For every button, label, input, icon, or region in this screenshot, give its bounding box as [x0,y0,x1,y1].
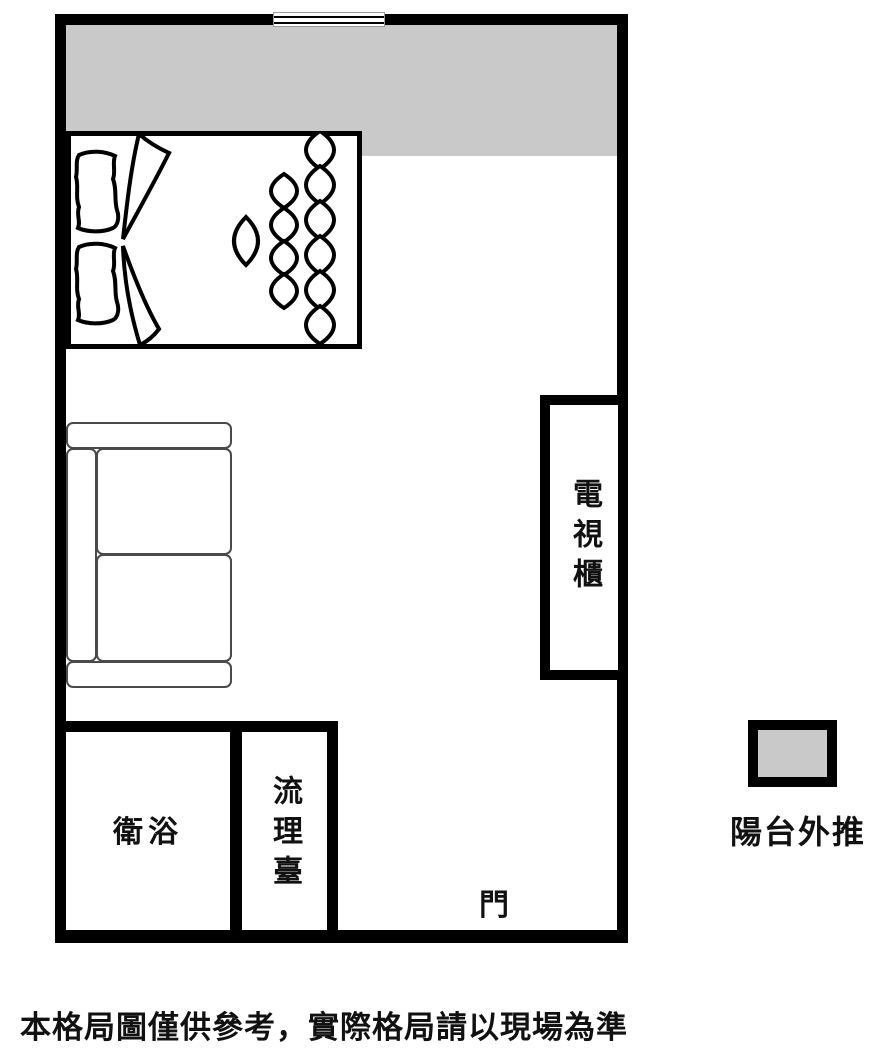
sofa-armrest [66,422,232,449]
sofa-seat-cushion [96,448,232,555]
quilt-diamond-pattern [234,131,334,344]
blanket-fold [123,246,159,345]
door-label: 門 [479,891,519,921]
bed [66,131,362,349]
tv-cabinet: 電視櫃 [540,395,628,680]
disclaimer-text: 本格局圖僅供參考，實際格局請以現場為準 [20,1002,870,1047]
window-pane-line [274,22,384,24]
blanket-fold [123,134,169,239]
pillow-icon [76,244,118,324]
legend-balcony-label: 陽台外推 [722,807,874,853]
sofa-armrest [66,661,232,688]
pillow-icon [76,152,118,232]
bathroom-label: 衛浴 [88,818,208,848]
legend-balcony-swatch [748,720,837,787]
floor-plan-canvas: 電視櫃 衛浴 流理臺 門 陽台外推 本格局圖僅供參考，實際格局請以現場為準 [0,0,889,1050]
sofa-seat-cushion [96,554,232,662]
window-icon [273,12,385,27]
sofa-backrest [66,448,97,662]
tv-cabinet-label: 電視櫃 [569,478,599,598]
kitchen-wall [327,721,338,943]
bathroom-kitchen-divider-wall [230,721,242,943]
kitchen-counter-label: 流理臺 [269,775,299,899]
bed-drawing [66,131,362,349]
window-pane-line [274,16,384,18]
bathroom-wall [55,721,338,732]
